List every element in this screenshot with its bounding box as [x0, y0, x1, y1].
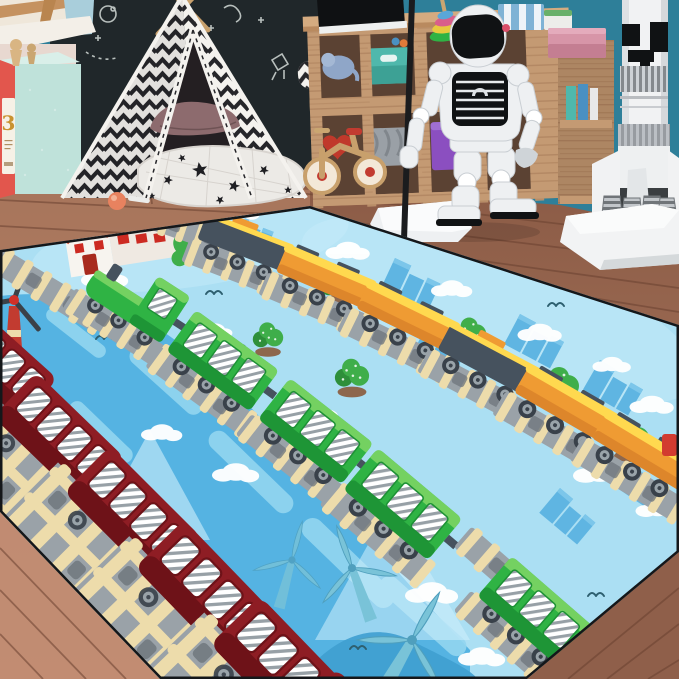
robot-head-accent: [502, 24, 510, 32]
mint-cabinet: 3: [0, 39, 81, 198]
pink-box: [548, 28, 606, 58]
track-signal: [662, 434, 677, 456]
robot-hand-on-pole: [400, 146, 418, 168]
product-photo-kids-train-rug: 3: [0, 0, 679, 679]
poster-number-text: 3: [2, 111, 16, 135]
number-poster: 3: [2, 98, 16, 174]
orange-ball: [108, 192, 126, 210]
robot-visor: [451, 13, 506, 60]
rocket-corrugated-band: [620, 66, 668, 92]
trike-seat: [346, 128, 362, 135]
scene-svg: 3: [0, 0, 679, 679]
books: [566, 84, 598, 120]
green-lid-box: [544, 10, 572, 30]
